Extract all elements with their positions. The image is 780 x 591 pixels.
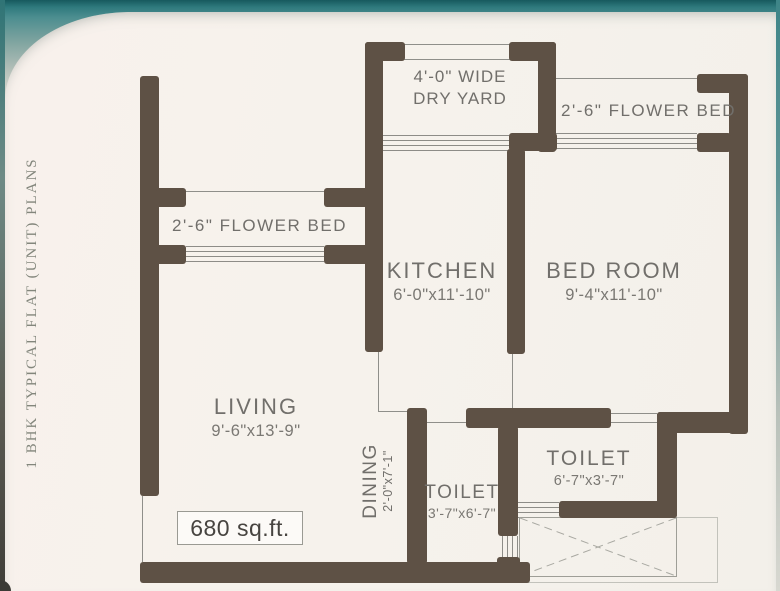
dryyard-window-line [403, 44, 510, 45]
area-box: 680 sq.ft. [177, 511, 303, 545]
wall-flowerbed-right-stub-top [324, 188, 368, 207]
dining-name: DINING [361, 426, 381, 536]
dry-yard-name: DRY YARD [395, 88, 525, 110]
shaft-window [502, 536, 518, 558]
dining-boundary-line [378, 411, 408, 412]
living-dims: 9'-6"x13'-9" [186, 421, 326, 442]
wall-flowerbed-right-stub-bottom [324, 245, 368, 264]
wall-flowerbed-left-stub-bottom [156, 245, 186, 264]
wall-dryyard-northwest [365, 42, 405, 61]
toilet-window-line [611, 422, 657, 423]
bedroom-dining-boundary-line [512, 354, 513, 408]
toilet-main-dims: 6'-7"x3'-7" [519, 472, 659, 490]
wall-flowerbed-top-south-stub [697, 133, 731, 152]
toilet-door-threshold-line [427, 422, 466, 423]
living-flowerbed-window [186, 246, 324, 262]
living-name: LIVING [186, 393, 326, 421]
wall-left-outer [140, 76, 159, 496]
flower-bed-top-label: 2'-6" FLOWER BED [556, 100, 741, 121]
bed-room-label: BED ROOM 9'-4"x11'-10" [539, 257, 689, 305]
toilet-main-window [518, 502, 559, 518]
kitchen-dims: 6'-0"x11'-10" [379, 285, 505, 306]
wall-right-outer [729, 148, 748, 434]
bedroom-flowerbed-window [556, 133, 697, 149]
flowerbed-left-edge-line [186, 191, 324, 192]
wall-toilet-north [466, 408, 611, 428]
flower-bed-left-label: 2'-6" FLOWER BED [172, 215, 344, 236]
plan-side-title: 1 BHK TYPICAL FLAT (UNIT) PLANS [24, 152, 42, 474]
toilet-small-name: TOILET [412, 481, 512, 505]
wall-kitchen-bedroom-divider [507, 149, 525, 354]
wall-toilet-main-east [657, 412, 677, 518]
bed-room-name: BED ROOM [539, 257, 689, 285]
entrance-opening-line [142, 496, 143, 562]
toilet-main-name: TOILET [519, 446, 659, 472]
wall-kitchen-west [365, 42, 383, 352]
dry-yard-label: 4'-0" WIDE DRY YARD [395, 66, 525, 110]
toilet-main-label: TOILET 6'-7"x3'-7" [519, 446, 659, 490]
living-label: LIVING 9'-6"x13'-9" [186, 393, 326, 441]
dining-dims: 2'-0"x7'-1" [381, 426, 396, 536]
dining-label: DINING 2'-0"x7'-1" [361, 426, 401, 536]
dry-yard-width: 4'-0" WIDE [395, 66, 525, 88]
toilet-small-dims: 3'-7"x6'-7" [412, 505, 512, 523]
kitchen-name: KITCHEN [379, 257, 505, 285]
kitchen-label: KITCHEN 6'-0"x11'-10" [379, 257, 505, 305]
bed-room-dims: 9'-4"x11'-10" [539, 285, 689, 306]
shaft-duct-box [519, 517, 719, 584]
wall-bottom-outer [140, 562, 530, 583]
toilet-small-label: TOILET 3'-7"x6'-7" [412, 481, 512, 522]
floor-plan: 4'-0" WIDE DRY YARD 2'-6" FLOWER BED 2'-… [0, 0, 780, 591]
wall-flowerbed-left-stub-top [156, 188, 186, 207]
dryyard-kitchen-window [383, 135, 509, 151]
dryyard-window-line [403, 59, 510, 60]
flowerbed-top-edge-line [556, 78, 697, 79]
dining-boundary-line [378, 352, 379, 411]
area-label: 680 sq.ft. [190, 515, 290, 542]
toilet-window-line [611, 413, 657, 414]
